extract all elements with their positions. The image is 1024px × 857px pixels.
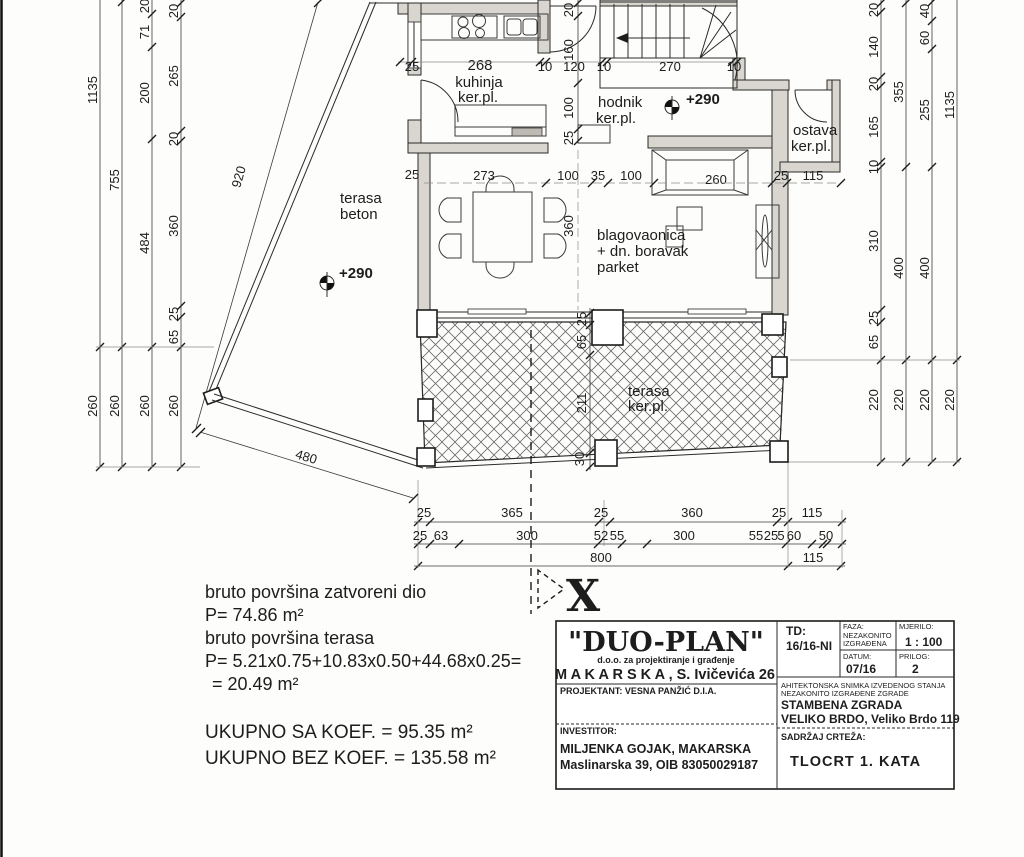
note-line: bruto površina terasa <box>205 628 375 648</box>
dim-label: 260 <box>166 395 181 417</box>
dim-label: 265 <box>166 65 181 87</box>
dim-label: 400 <box>917 257 932 279</box>
dim-label: 365 <box>501 505 523 520</box>
dim-label: 100 <box>620 168 642 183</box>
column <box>762 314 783 335</box>
dim-label: 20 <box>866 3 881 17</box>
dim-label: 63 <box>434 528 448 543</box>
dim-label: 25 <box>413 528 427 543</box>
dim-label: 200 <box>137 82 152 104</box>
bottom-dimension-chains: 25 365 25 360 25 115 25 63 300 52 55 300… <box>413 455 846 570</box>
dim-label: 71 <box>137 25 152 39</box>
area-notes: bruto površina zatvoreni dio P= 74.86 m²… <box>205 582 521 769</box>
dim-label: 220 <box>891 389 906 411</box>
dim-label: 25 <box>774 168 788 183</box>
dim-label: 20 <box>137 0 152 13</box>
dim-label: 484 <box>137 232 152 254</box>
level-label: +290 <box>686 91 720 108</box>
attachment-label: PRILOG: <box>899 652 929 661</box>
room-label: + dn. boravak <box>597 243 689 260</box>
dim-label: 40 <box>917 4 932 18</box>
dim-label: 755 <box>107 169 122 191</box>
dim-label: 260 <box>137 395 152 417</box>
note-line: P= 5.21x0.75+10.83x0.50+44.68x0.25= <box>205 651 521 671</box>
dim-label: 355 <box>891 81 906 103</box>
date-label: DATUM: <box>843 652 871 661</box>
scale-label: MJERILO: <box>899 622 934 631</box>
dim-label: 165 <box>866 116 881 138</box>
room-floor-label: ker.pl. <box>458 89 498 106</box>
dim-label: 25 <box>866 311 881 325</box>
td-value: 16/16-NI <box>786 639 832 653</box>
investor-name: MILJENKA GOJAK, MAKARSKA <box>560 742 751 756</box>
content-label: SADRŽAJ CRTEŽA: <box>781 731 866 742</box>
scale-value: 1 : 100 <box>905 635 943 649</box>
dim-label: 100 <box>557 168 579 183</box>
building-location: VELIKO BRDO, Veliko Brdo 119 <box>781 712 960 726</box>
room-label: blagovaonica <box>597 227 686 244</box>
dim-label: 50 <box>819 528 833 543</box>
stair-direction-arrow <box>616 33 628 43</box>
section-arrow <box>538 570 564 608</box>
room-floor-label: ker.pl. <box>596 110 636 127</box>
terrace-tiled: terasa ker.pl. <box>417 309 788 468</box>
right-dimension-chains: 20 140 20 165 10 310 25 65 220 355 400 2… <box>788 0 961 466</box>
title-block: "DUO-PLAN" d.o.o. za projektiranje i gra… <box>555 621 960 789</box>
room-label: terasa <box>340 190 382 207</box>
dim-label: 25 <box>764 528 778 543</box>
dim-label: 10 <box>538 59 552 74</box>
td-label: TD: <box>786 624 806 638</box>
column <box>595 440 617 466</box>
dim-label: 360 <box>166 215 181 237</box>
dim-label: 260 <box>85 395 100 417</box>
dim-label: 160 <box>561 39 576 61</box>
dim-label: 255 <box>917 99 932 121</box>
dim-label: 10 <box>597 59 611 74</box>
scanned-floor-plan-page: 1135 260 755 260 20 71 200 484 260 20 26… <box>0 0 1024 857</box>
level-marker-icon <box>665 96 679 120</box>
column <box>592 310 623 345</box>
investor-label: INVESTITOR: <box>560 726 617 736</box>
dim-label: 211 <box>574 393 589 414</box>
dim-label: 100 <box>561 97 576 119</box>
dim-label: 220 <box>866 389 881 411</box>
dim-label: 60 <box>787 528 801 543</box>
note-total: UKUPNO BEZ KOEF. = 135.58 m² <box>205 748 496 769</box>
dim-label: 360 <box>681 505 703 520</box>
column <box>772 357 787 377</box>
designer: PROJEKTANT: VESNA PANŽIĆ D.I.A. <box>560 685 716 696</box>
dim-label: 115 <box>803 168 824 183</box>
level-marker-icon <box>320 272 334 297</box>
dining-table <box>473 192 532 262</box>
dim-label: 60 <box>917 31 932 45</box>
door-arc <box>421 80 458 122</box>
dim-label: 52 <box>594 528 608 543</box>
attachment-value: 2 <box>912 662 919 676</box>
dim-label: 273 <box>473 168 495 183</box>
section-label: X <box>566 571 601 622</box>
investor-address: Maslinarska 39, OIB 83050029187 <box>560 758 758 772</box>
building-type: STAMBENA ZGRADA <box>781 698 903 712</box>
hallway: hodnik ker.pl. +290 <box>550 6 720 143</box>
room-label: beton <box>340 206 378 223</box>
dim-label: 1135 <box>85 76 100 104</box>
note-line: = 20.49 m² <box>212 674 299 694</box>
room-label: ostava <box>793 122 838 139</box>
storage-room: ostava ker.pl. <box>791 90 838 155</box>
dim-label: 25 <box>166 307 181 321</box>
sliding-glass-door <box>434 309 592 318</box>
dim-label: 10 <box>727 59 741 74</box>
dim-label: 220 <box>942 389 957 411</box>
dim-label: 1135 <box>942 91 957 119</box>
project-description: NEZAKONITO IZGRAĐENE ZGRADE <box>781 689 909 698</box>
terrace-beton: terasa beton +290 <box>203 2 424 468</box>
room-floor-label: parket <box>597 259 640 276</box>
column <box>770 441 788 462</box>
sofa <box>652 150 748 195</box>
dim-label: 25 <box>574 312 589 326</box>
dim-label: 25 <box>561 131 576 145</box>
column <box>417 448 435 466</box>
column <box>417 310 437 337</box>
dim-label: 65 <box>866 335 881 349</box>
date-value: 07/16 <box>846 662 876 676</box>
column <box>418 399 433 421</box>
dim-label: 260 <box>705 172 727 187</box>
dim-label: 480 <box>294 446 319 467</box>
room-floor-label: ker.pl. <box>628 398 668 415</box>
dim-label: 5 <box>777 528 784 543</box>
dim-label: 115 <box>803 550 824 565</box>
dim-label: 360 <box>561 215 576 237</box>
dim-label: 55 <box>610 528 624 543</box>
dim-label: 25 <box>417 505 431 520</box>
diagonal-dimensions: 920 480 <box>192 0 418 503</box>
dim-label: 220 <box>917 389 932 411</box>
left-dimension-chains: 1135 260 755 260 20 71 200 484 260 20 26… <box>85 0 214 471</box>
dim-label: 115 <box>802 505 823 520</box>
note-line: P= 74.86 m² <box>205 605 304 625</box>
room-label: hodnik <box>598 94 643 111</box>
company-name: "DUO-PLAN" <box>568 627 764 658</box>
phase-value: IZGRAĐENA <box>843 639 887 648</box>
dim-label: 20 <box>166 4 181 18</box>
dim-label: 20 <box>561 3 576 17</box>
dim-label: 30 <box>572 452 587 466</box>
dim-label: 310 <box>866 230 881 252</box>
company-address: M A K A R S K A , S. Ivičevića 26 <box>555 667 775 683</box>
kitchen: 268 kuhinja ker.pl. <box>421 14 548 136</box>
dim-label: 35 <box>591 168 605 183</box>
dim-label: 400 <box>891 257 906 279</box>
dim-label: 920 <box>228 164 248 189</box>
dim-label: 65 <box>166 330 181 344</box>
dim-label: 65 <box>574 335 589 349</box>
note-line: bruto površina zatvoreni dio <box>205 582 426 602</box>
dim-label: 25 <box>594 505 608 520</box>
dim-label: 20 <box>166 132 181 146</box>
dim-label: 25 <box>405 59 419 74</box>
dim-label: 140 <box>866 36 881 58</box>
phase-label: FAZA: <box>843 622 864 631</box>
room-number: 268 <box>467 57 492 74</box>
dim-label: 55 <box>749 528 763 543</box>
floor-plan-drawing: 1135 260 755 260 20 71 200 484 260 20 26… <box>0 0 1024 857</box>
dim-label: 25 <box>405 167 419 182</box>
dim-label: 300 <box>673 528 695 543</box>
company-subtitle: d.o.o. za projektiranje i građenje <box>597 655 735 665</box>
note-total: UKUPNO SA KOEF. = 95.35 m² <box>205 722 473 743</box>
dim-label: 800 <box>590 550 612 565</box>
drawing-title: TLOCRT 1. KATA <box>790 754 921 770</box>
dim-label: 270 <box>659 59 681 74</box>
dim-label: 300 <box>516 528 538 543</box>
room-floor-label: ker.pl. <box>791 138 831 155</box>
sliding-glass-door <box>622 309 772 318</box>
dim-label: 260 <box>107 395 122 417</box>
door-arc <box>795 90 827 122</box>
dim-label: 20 <box>866 77 881 91</box>
level-label: +290 <box>339 265 373 282</box>
dim-label: 25 <box>772 505 786 520</box>
staircase <box>600 0 737 88</box>
dim-label: 10 <box>866 160 881 174</box>
